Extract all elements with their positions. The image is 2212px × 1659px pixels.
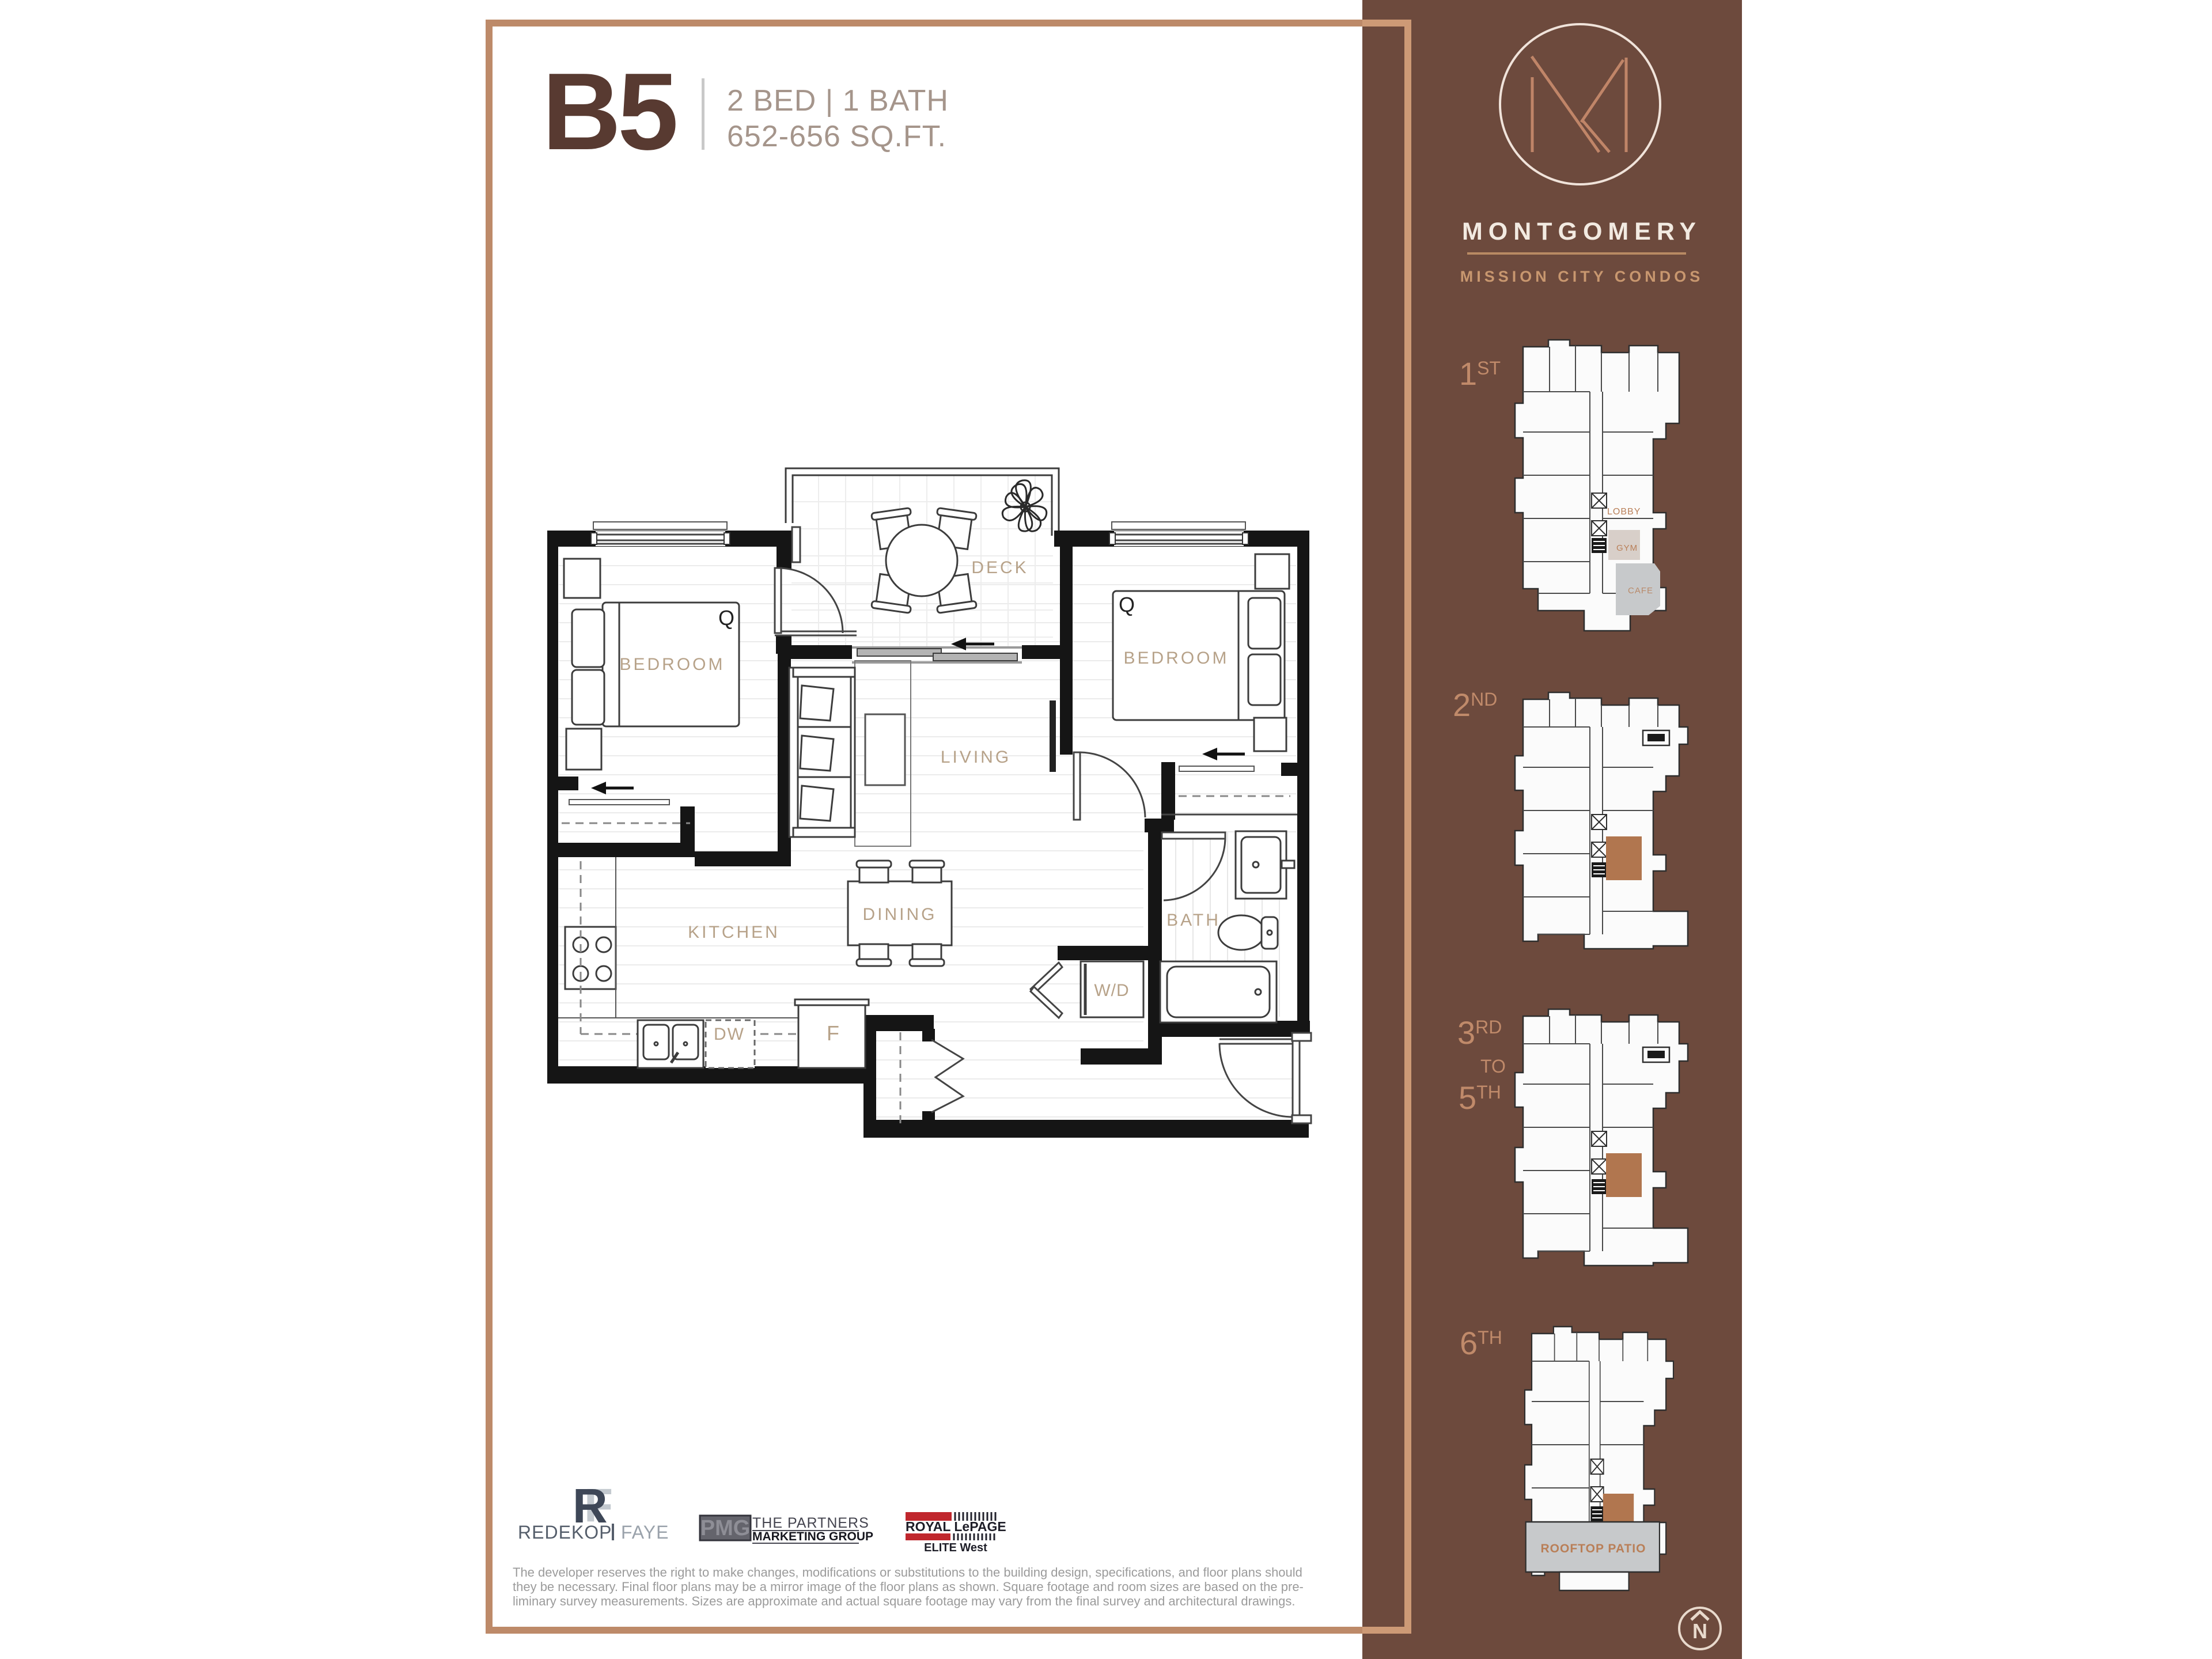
svg-text:ROYAL LePAGE: ROYAL LePAGE bbox=[906, 1519, 1006, 1534]
svg-text:BEDROOM: BEDROOM bbox=[1123, 649, 1229, 668]
svg-text:MARKETING GROUP: MARKETING GROUP bbox=[752, 1530, 873, 1543]
svg-text:B5: B5 bbox=[542, 51, 676, 173]
svg-text:W/D: W/D bbox=[1094, 981, 1129, 1000]
svg-text:Q: Q bbox=[718, 606, 734, 630]
svg-text:Q: Q bbox=[1119, 593, 1135, 616]
svg-text:652-656 SQ.FT.: 652-656 SQ.FT. bbox=[727, 120, 946, 153]
svg-text:2 BED | 1 BATH: 2 BED | 1 BATH bbox=[727, 84, 949, 118]
svg-text:DECK: DECK bbox=[971, 558, 1028, 577]
svg-text:TO: TO bbox=[1480, 1056, 1506, 1077]
svg-text:N: N bbox=[1692, 1619, 1707, 1643]
svg-text:BEDROOM: BEDROOM bbox=[619, 655, 725, 674]
svg-text:REDEKOP: REDEKOP bbox=[518, 1522, 612, 1543]
svg-text:DINING: DINING bbox=[863, 905, 937, 924]
svg-text:THE PARTNERS: THE PARTNERS bbox=[752, 1515, 869, 1531]
svg-text:DW: DW bbox=[714, 1025, 745, 1044]
svg-text:KITCHEN: KITCHEN bbox=[688, 923, 780, 942]
svg-text:The developer reserves the rig: The developer reserves the right to make… bbox=[513, 1565, 1302, 1580]
svg-text:GYM: GYM bbox=[1616, 543, 1638, 553]
svg-text:CAFE: CAFE bbox=[1628, 586, 1653, 596]
svg-text:F: F bbox=[827, 1021, 839, 1045]
svg-text:they be necessary. Final floor: they be necessary. Final floor plans may… bbox=[513, 1580, 1304, 1594]
svg-text:ROOFTOP PATIO: ROOFTOP PATIO bbox=[1541, 1542, 1646, 1555]
svg-text:LOBBY: LOBBY bbox=[1607, 507, 1641, 517]
svg-text:PMG: PMG bbox=[700, 1516, 751, 1540]
svg-text:ELITE West: ELITE West bbox=[924, 1541, 987, 1554]
svg-text:FAYE: FAYE bbox=[621, 1522, 669, 1543]
svg-text:LIVING: LIVING bbox=[941, 748, 1011, 767]
svg-text:BATH: BATH bbox=[1166, 911, 1221, 930]
svg-text:MISSION CITY CONDOS: MISSION CITY CONDOS bbox=[1460, 268, 1704, 285]
svg-text:MONTGOMERY: MONTGOMERY bbox=[1462, 218, 1702, 245]
svg-text:liminary survey measurements.: liminary survey measurements. Sizes are … bbox=[513, 1594, 1296, 1608]
